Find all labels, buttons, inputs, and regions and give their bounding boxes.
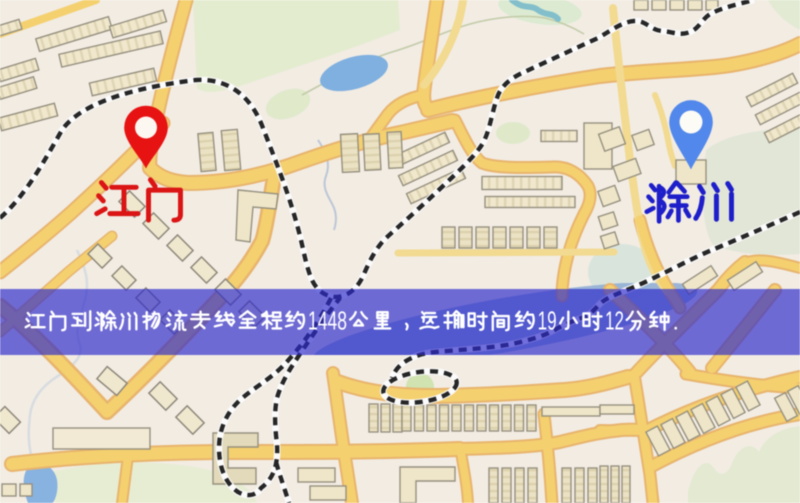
svg-text:12: 12 [605,306,624,336]
svg-text:1448: 1448 [308,306,347,336]
svg-text:.: . [672,309,679,336]
svg-text:19: 19 [538,306,557,336]
